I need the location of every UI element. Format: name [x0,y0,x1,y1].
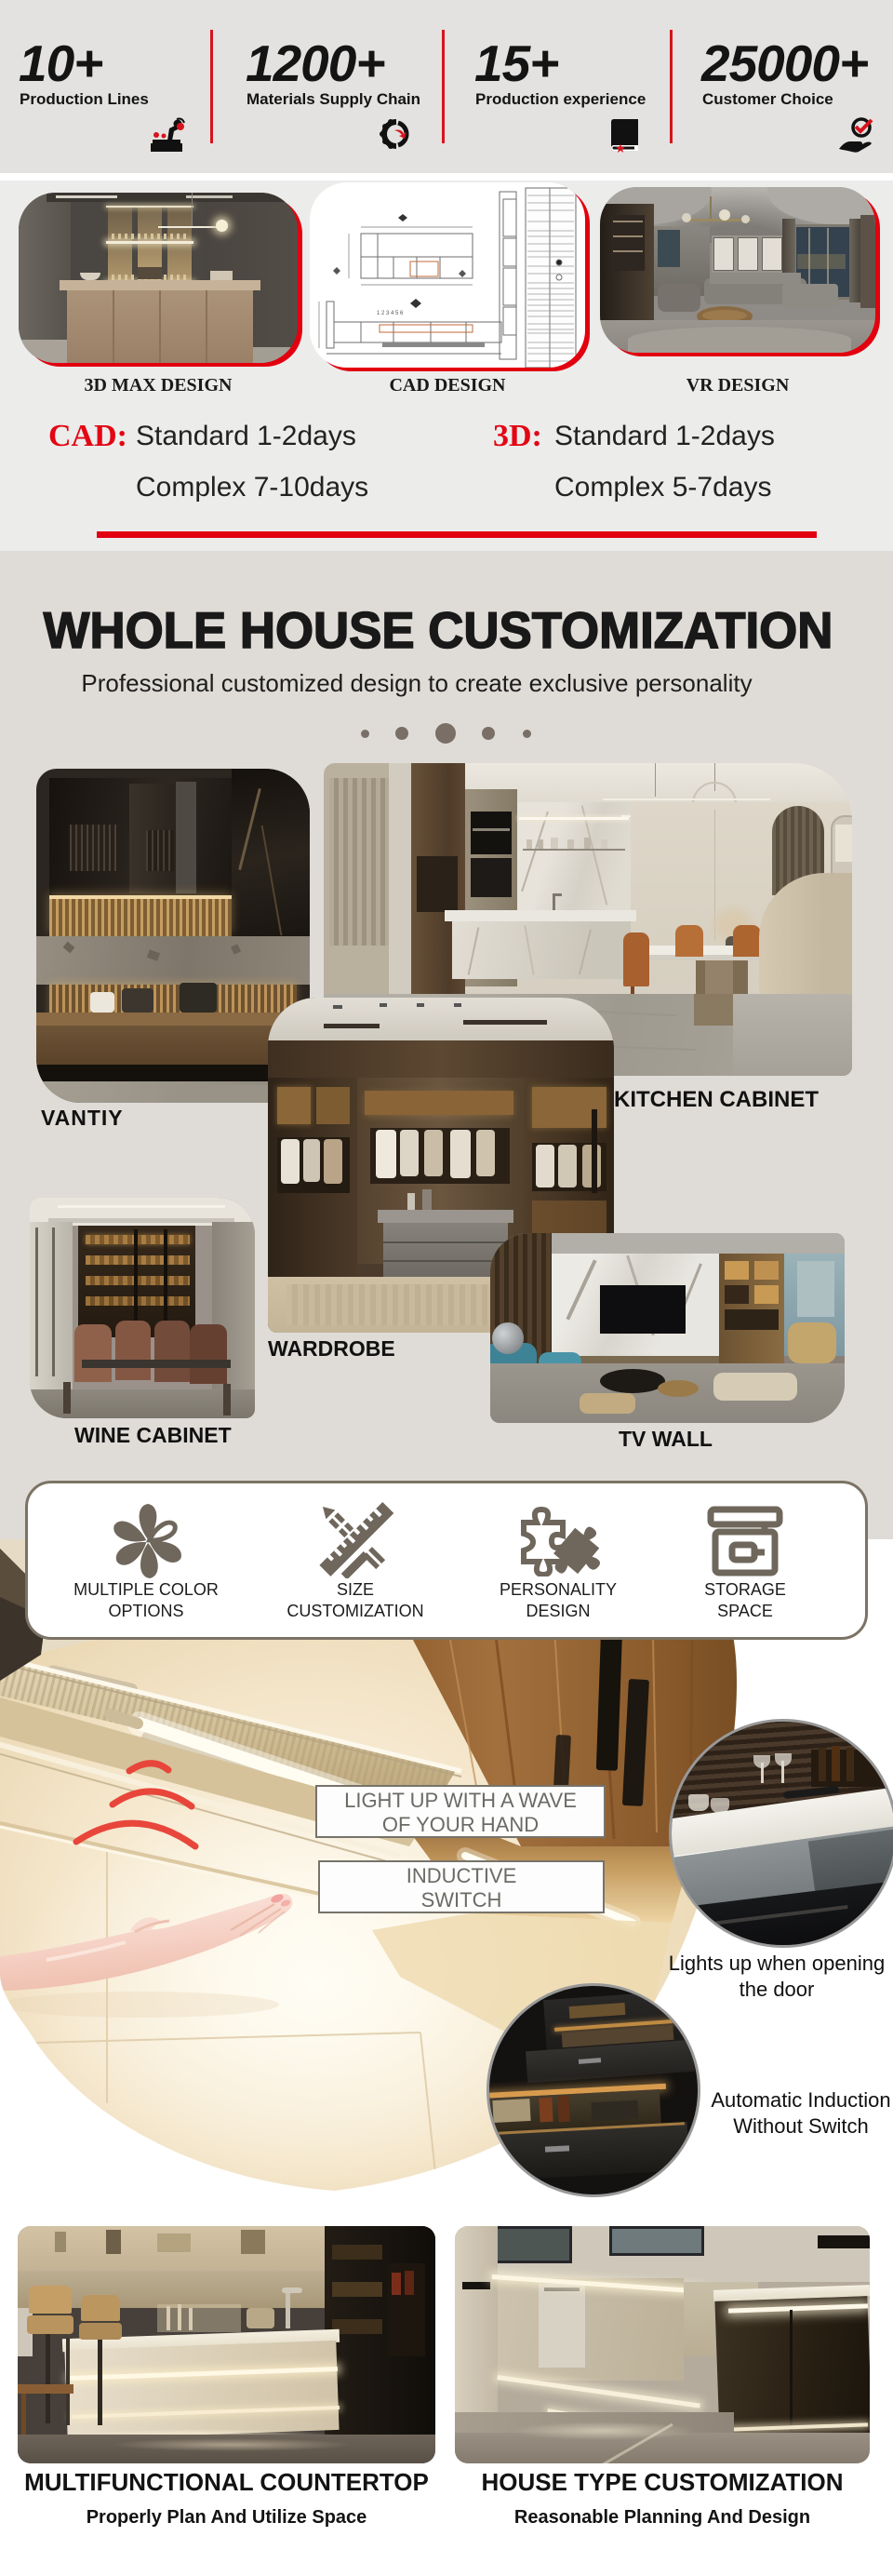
svg-text:1 2 3 4 5 6: 1 2 3 4 5 6 [377,311,404,316]
